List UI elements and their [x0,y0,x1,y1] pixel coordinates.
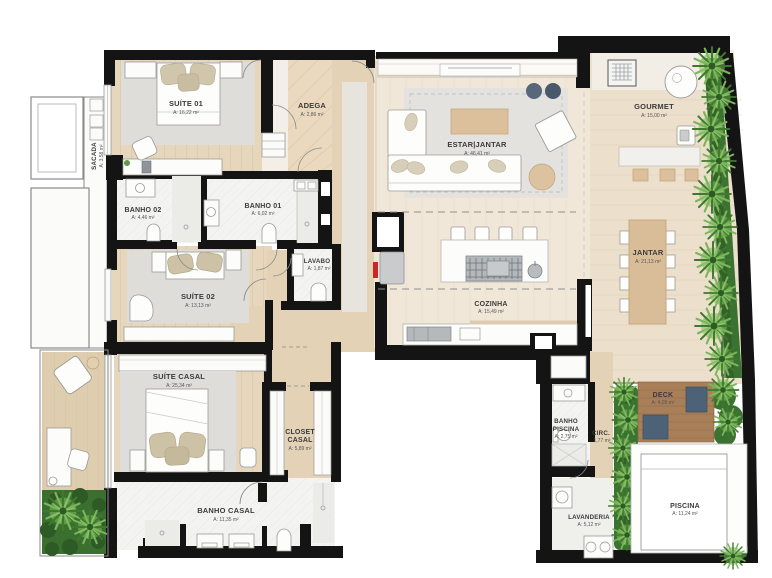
svg-text:A: 15,00 m²: A: 15,00 m² [641,113,667,119]
svg-text:A: 13,13 m²: A: 13,13 m² [185,303,211,309]
svg-text:A: 6,02 m²: A: 6,02 m² [251,211,274,217]
svg-text:CIRC.: CIRC. [592,430,610,437]
svg-text:DECK: DECK [653,392,674,399]
svg-text:BANHO CASAL: BANHO CASAL [197,506,255,515]
svg-text:A: 21,13 m²: A: 21,13 m² [635,259,661,265]
svg-text:ESTAR|JANTAR: ESTAR|JANTAR [447,140,507,149]
svg-text:LAVABO: LAVABO [304,258,330,265]
svg-text:A: 15,49 m²: A: 15,49 m² [478,309,504,315]
svg-text:A: 1,87 m²: A: 1,87 m² [307,266,330,272]
svg-text:LAVANDERIA: LAVANDERIA [568,514,610,521]
svg-text:A: 46,41 m²: A: 46,41 m² [464,151,490,157]
svg-text:SUÍTE CASAL: SUÍTE CASAL [153,372,205,381]
svg-text:A: 25,34 m²: A: 25,34 m² [166,383,192,389]
svg-text:CASAL: CASAL [287,437,313,444]
svg-text:PISCINA: PISCINA [670,503,700,510]
svg-text:CLOSET: CLOSET [285,429,315,436]
svg-text:A: 5,89 m²: A: 5,89 m² [288,446,311,452]
svg-text:ADEGA: ADEGA [298,101,326,110]
svg-text:BANHO 01: BANHO 01 [245,203,282,210]
svg-text:BANHO 02: BANHO 02 [125,207,162,214]
svg-text:SUÍTE 01: SUÍTE 01 [169,99,203,108]
svg-text:A: 2,86 m²: A: 2,86 m² [300,112,323,118]
svg-text:GOURMET: GOURMET [634,102,674,111]
svg-text:1,77 m²: 1,77 m² [594,438,611,444]
svg-text:A: 11,35 m²: A: 11,35 m² [213,517,239,523]
svg-text:A: 4,09 m²: A: 4,09 m² [651,400,674,406]
svg-text:A: 4,46 m²: A: 4,46 m² [131,215,154,221]
svg-text:PISCINA: PISCINA [553,426,580,433]
svg-text:BANHO: BANHO [554,418,578,425]
svg-text:JANTAR: JANTAR [632,248,663,257]
svg-text:COZINHA: COZINHA [474,301,507,308]
svg-text:A: 16,22 m²: A: 16,22 m² [173,110,199,116]
svg-text:A: 11,24 m²: A: 11,24 m² [672,511,698,517]
svg-text:A: 5,12 m²: A: 5,12 m² [577,522,600,528]
svg-text:SUÍTE 02: SUÍTE 02 [181,292,215,301]
svg-text:SACADA: SACADA [91,142,98,170]
svg-text:A: 2,75 m²: A: 2,75 m² [554,434,577,440]
